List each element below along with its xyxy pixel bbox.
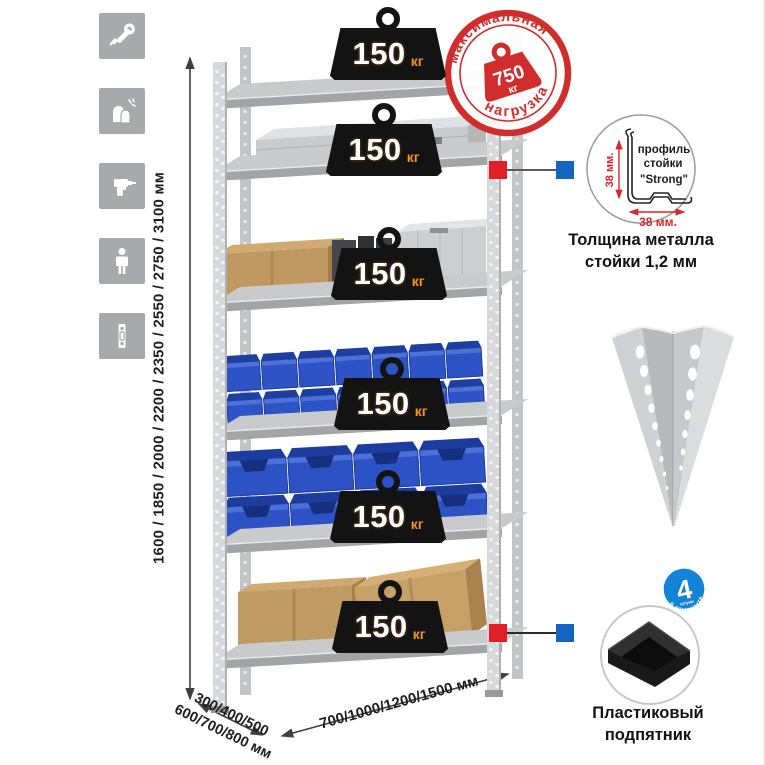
wrench-icon	[99, 13, 145, 59]
weight-ring-icon	[380, 357, 404, 381]
svg-text:профиль: профиль	[638, 144, 691, 156]
front-right-post	[485, 46, 503, 697]
svg-text:"Strong": "Strong"	[640, 174, 688, 186]
front-left-post	[211, 62, 229, 713]
person-icon	[99, 238, 145, 284]
weight-ring-icon	[377, 227, 401, 251]
shelf-load-badge: 150кг	[326, 103, 442, 176]
foot-caption: Пластиковый подпятник	[563, 703, 733, 747]
weight-ring-icon	[376, 470, 400, 494]
height-dimension-label: 1600 / 1850 / 2000 / 2200 / 2350 / 2550 …	[146, 80, 172, 655]
shelf-load-badge: 150кг	[331, 227, 447, 300]
red-marker	[489, 624, 507, 642]
plastic-foot-detail: 4 штуки в комплекте	[601, 563, 710, 704]
blue-marker	[556, 161, 574, 179]
post-profile-detail: 38 мм. 38 мм. профиль стойки "Strong"	[587, 115, 695, 229]
red-marker	[489, 161, 507, 179]
profile-label: профиль стойки "Strong"	[638, 144, 691, 186]
profile-caption: Толщина металла стойки 1,2 мм	[556, 230, 726, 274]
shelf-load-badge: 150кг	[330, 7, 446, 80]
svg-text:стойки: стойки	[644, 158, 683, 170]
shelf-load-badge: 150кг	[330, 470, 446, 543]
shelf-load-badge: 150кг	[332, 580, 448, 653]
angle-post-image	[612, 326, 734, 528]
weight-ring-icon	[376, 7, 400, 31]
profile-callout-connector	[489, 161, 574, 179]
product-infographic: максимальная нагрузка 750 кг 3	[0, 0, 765, 765]
weight-ring-icon	[372, 103, 396, 127]
weight-ring-icon	[378, 580, 402, 604]
svg-text:38 мм.: 38 мм.	[639, 215, 677, 229]
foot-callout-connector	[489, 624, 574, 642]
gloves-icon	[99, 88, 145, 134]
svg-text:38 мм.: 38 мм.	[604, 153, 616, 188]
blue-marker	[556, 624, 574, 642]
drill-icon	[99, 163, 145, 209]
shelf-load-badge: 150кг	[334, 357, 450, 430]
post-profile-icon	[99, 313, 145, 359]
